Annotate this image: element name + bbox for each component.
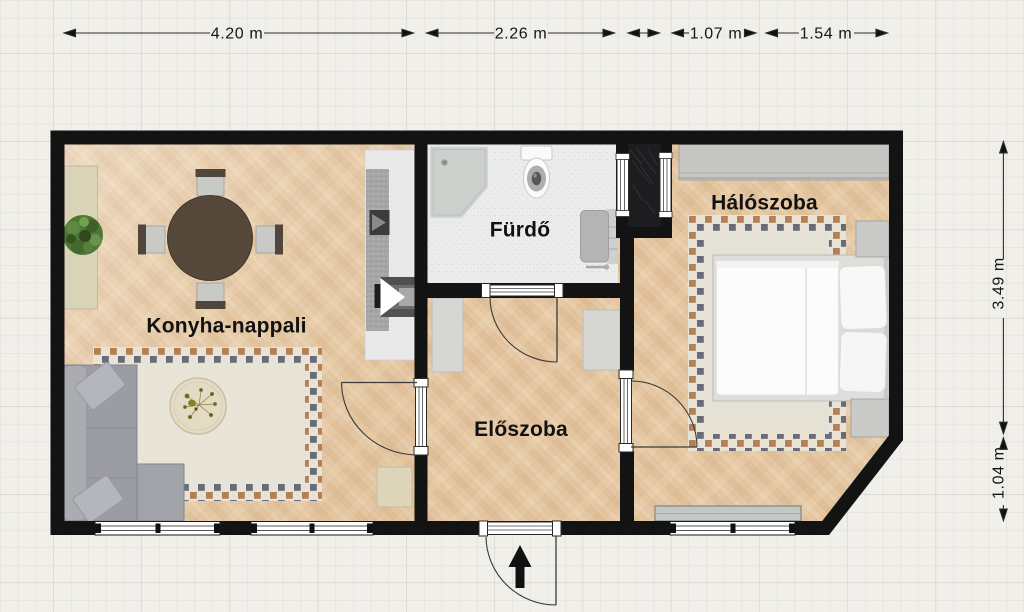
svg-text:1.07 m: 1.07 m — [690, 26, 743, 43]
svg-text:4.20 m: 4.20 m — [211, 26, 264, 43]
svg-text:2.26 m: 2.26 m — [495, 26, 548, 43]
svg-text:Hálószoba: Hálószoba — [711, 192, 818, 215]
svg-text:1.54 m: 1.54 m — [800, 26, 853, 43]
svg-text:1.04 m: 1.04 m — [990, 446, 1007, 499]
svg-text:3.49 m: 3.49 m — [990, 257, 1007, 310]
svg-text:Fürdő: Fürdő — [490, 219, 550, 242]
svg-text:Konyha-nappali: Konyha-nappali — [146, 315, 306, 338]
svg-text:Előszoba: Előszoba — [474, 418, 568, 441]
